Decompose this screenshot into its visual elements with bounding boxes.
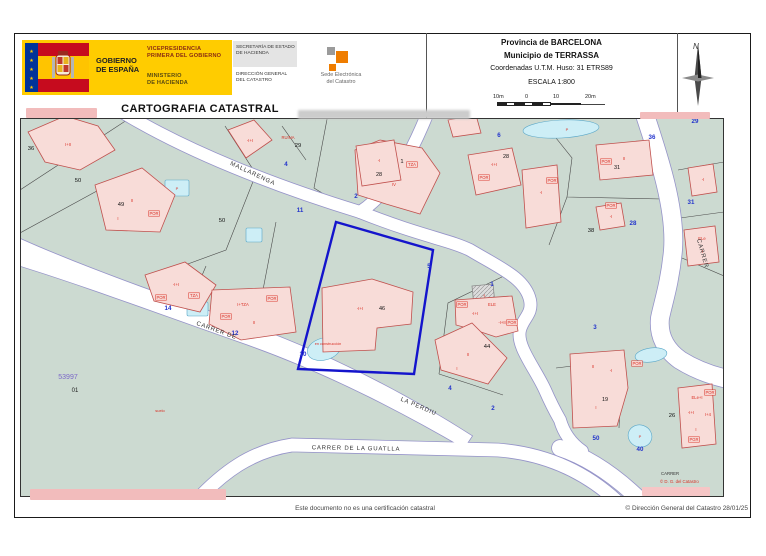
map-label: 19 xyxy=(602,397,608,403)
map-label: POR xyxy=(601,159,610,164)
svg-text:★: ★ xyxy=(29,85,34,91)
map-label: P xyxy=(176,186,179,191)
scale-tick: 10m xyxy=(493,94,504,100)
map-label: 4 xyxy=(284,161,288,168)
scale-bar: 10m 0 10 20m xyxy=(493,94,609,108)
cadastral-document-page: ★ ★ ★ ★ ★ GOBIERNO DE ESPAÑA VICEPRESIDE… xyxy=(0,0,766,556)
map-label: I xyxy=(117,216,118,221)
map-label: POR xyxy=(221,314,230,319)
sede-logo-small-square xyxy=(329,64,336,71)
map-label: 31 xyxy=(688,199,695,206)
map-label: -I+I xyxy=(688,410,694,415)
redaction-overlay xyxy=(30,489,226,500)
provincia-label: Provincia de BARCELONA xyxy=(426,38,677,47)
map-label: 36 xyxy=(649,134,656,141)
map-label: 44 xyxy=(484,344,491,350)
secretaria-label: SECRETARÍA DE ESTADO DE HACIENDA xyxy=(236,45,295,57)
map-label: II xyxy=(592,364,594,369)
map-label: I+II xyxy=(65,142,71,147)
map-label: POR xyxy=(632,361,641,366)
map-label: 2 xyxy=(491,405,495,412)
map-label: en construcción xyxy=(315,342,342,346)
map-label: 1 xyxy=(400,159,403,165)
vicepresidencia-label: VICEPRESIDENCIA PRIMERA DEL GOBIERNO xyxy=(147,46,221,60)
map-label: -I+I xyxy=(173,282,179,287)
redaction-overlay xyxy=(640,112,710,119)
map-label: 2 xyxy=(354,193,358,200)
map-label: P xyxy=(639,434,642,439)
map-label: POR xyxy=(149,211,158,216)
map-label: POR xyxy=(267,296,276,301)
map-label: -I xyxy=(540,190,543,195)
map-label: 10 xyxy=(300,351,307,358)
map-label: II xyxy=(253,320,255,325)
coordenadas-label: Coordenadas U.T.M. Huso: 31 ETRS89 xyxy=(426,65,677,72)
svg-text:★: ★ xyxy=(29,49,34,55)
map-label: 38 xyxy=(588,228,594,234)
map-label: 53997 xyxy=(58,374,78,381)
map-label: I+TZA xyxy=(237,302,249,307)
redaction-overlay xyxy=(642,487,710,496)
map-label: -I xyxy=(378,158,381,163)
map-label: POR xyxy=(457,302,466,307)
ministerio-label: MINISTERIO DE HACIENDA xyxy=(147,73,188,87)
scale-tick: 10 xyxy=(553,94,559,100)
map-label: CARRER xyxy=(661,471,679,476)
map-label: 36 xyxy=(28,146,34,152)
map-label: -I+II xyxy=(498,320,505,325)
map-label: PGR xyxy=(689,437,698,442)
map-label: 46 xyxy=(379,306,385,312)
svg-text:★: ★ xyxy=(29,76,34,82)
map-label: I xyxy=(695,427,696,432)
scale-tick: 0 xyxy=(525,94,528,100)
map-label: ELE xyxy=(488,302,496,307)
map-label: II xyxy=(131,198,133,203)
compass-icon: N xyxy=(678,38,718,110)
map-label: © D. G. del Catastro xyxy=(660,479,699,484)
map-label: -I+I xyxy=(247,138,253,143)
map-label: II xyxy=(623,156,625,161)
spain-eu-flag-icon: ★ ★ ★ ★ ★ xyxy=(25,43,89,92)
map-label: suelo xyxy=(155,408,165,413)
map-label: 50 xyxy=(593,435,600,442)
sede-logo-orange-square xyxy=(336,51,348,63)
map-label: ELe+I xyxy=(691,395,702,400)
map-label: RUINA xyxy=(281,135,294,140)
map-label: -I xyxy=(702,177,705,182)
map-label: -I xyxy=(483,293,486,298)
sede-electronica-label: Sede Electrónica del Catastro xyxy=(310,72,372,86)
map-label: 01 xyxy=(72,388,79,394)
sede-logo-gray-square xyxy=(327,47,335,55)
page-title: CARTOGRAFIA CATASTRAL xyxy=(120,103,280,115)
map-label: -I+I xyxy=(491,162,497,167)
map-label: 14 xyxy=(165,305,172,312)
gobierno-wordmark: GOBIERNO DE ESPAÑA xyxy=(96,56,139,74)
map-label: 5 xyxy=(427,263,431,270)
building xyxy=(570,350,628,428)
redaction-overlay xyxy=(26,108,97,118)
map-label: 4 xyxy=(448,385,452,392)
pool xyxy=(246,228,262,242)
map-label: 28 xyxy=(630,220,637,227)
scale-tick: 20m xyxy=(585,94,596,100)
map-label: 1 xyxy=(490,281,494,288)
map-label: 31 xyxy=(614,165,620,171)
copyright-text: © Dirección General del Catastro 28/01/2… xyxy=(555,505,748,512)
escala-label: ESCALA 1:800 xyxy=(426,79,677,86)
disclaimer-text: Este documento no es una certificación c… xyxy=(240,505,490,512)
map-label: POR xyxy=(705,390,714,395)
map-label: 3 xyxy=(593,324,597,331)
redaction-overlay xyxy=(298,110,470,119)
map-label: 28 xyxy=(376,172,382,178)
map-label: 49 xyxy=(118,202,124,208)
map-label: 6 xyxy=(497,132,501,139)
map-label: IV xyxy=(392,182,396,187)
map-label: -I xyxy=(610,368,613,373)
map-label: -I+I xyxy=(472,311,478,316)
svg-text:★: ★ xyxy=(29,67,34,73)
map-label: I xyxy=(456,366,457,371)
map-label: 11 xyxy=(297,207,304,214)
direccion-general-label: DIRECCIÓN GENERAL DEL CATASTRO xyxy=(236,72,287,84)
map-label: 28 xyxy=(503,154,509,160)
map-label: TZA xyxy=(190,293,198,298)
cadastral-map: PPPPI+II-I+IIIIPORI+TTZAIVII-I+ITZAPORI+… xyxy=(20,118,724,497)
map-label: 50 xyxy=(75,178,81,184)
svg-text:★: ★ xyxy=(29,58,34,64)
map-label: POR xyxy=(156,295,165,300)
map-label: POR xyxy=(507,320,516,325)
map-label: I+4 xyxy=(705,412,712,417)
map-label: -I+I xyxy=(357,306,363,311)
map-label: 29 xyxy=(295,143,301,149)
map-label: 50 xyxy=(219,218,225,224)
map-label: 29 xyxy=(692,118,699,125)
municipio-label: Municipio de TERRASSA xyxy=(426,51,677,60)
map-label: POR xyxy=(479,175,488,180)
map-label: POR xyxy=(547,178,556,183)
building xyxy=(522,165,561,228)
map-label: -I xyxy=(610,214,613,219)
map-label: II xyxy=(467,352,469,357)
map-label: POR xyxy=(606,203,615,208)
building xyxy=(356,140,401,186)
map-label: TZA xyxy=(408,162,416,167)
map-label: 26 xyxy=(669,413,675,419)
map-label: I xyxy=(595,405,596,410)
map-label: P xyxy=(566,127,569,132)
map-label: 40 xyxy=(637,446,644,453)
